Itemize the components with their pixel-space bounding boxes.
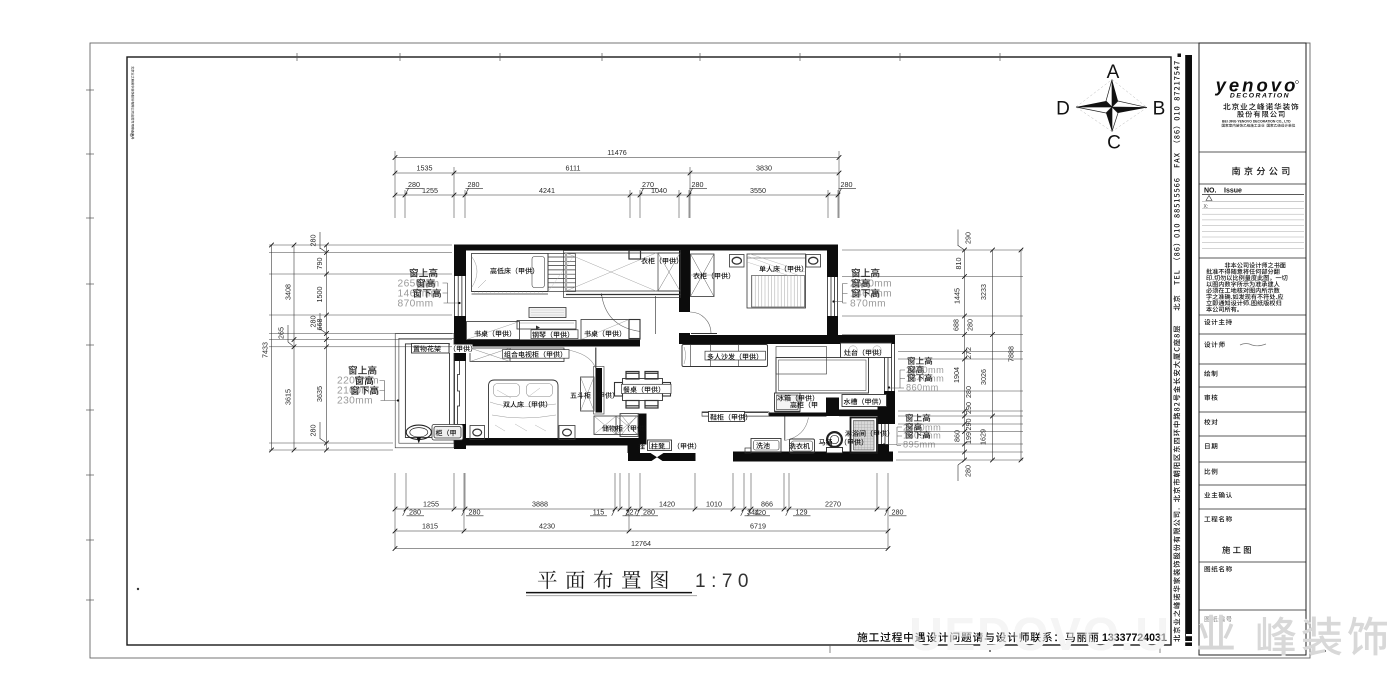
svg-text:1629: 1629 (979, 429, 988, 445)
svg-text:870mm: 870mm (398, 299, 434, 310)
svg-text:810: 810 (954, 258, 963, 270)
svg-text:230mm: 230mm (337, 396, 373, 407)
svg-text:290: 290 (964, 419, 973, 431)
svg-text:1445: 1445 (953, 288, 962, 304)
svg-text:120: 120 (754, 508, 766, 517)
svg-text:895mm: 895mm (903, 440, 936, 450)
svg-text:870mm: 870mm (850, 299, 886, 310)
svg-text:Issue: Issue (1224, 188, 1242, 195)
svg-text:DECORATION: DECORATION (1230, 93, 1290, 100)
svg-text:280: 280 (964, 386, 973, 398)
svg-text:1904: 1904 (952, 367, 961, 383)
svg-text:D: D (1056, 99, 1070, 120)
svg-text:3635: 3635 (315, 386, 324, 402)
svg-text:1420: 1420 (659, 500, 675, 509)
svg-text:290: 290 (964, 402, 973, 414)
svg-text:4241: 4241 (539, 186, 555, 195)
svg-text:280: 280 (468, 180, 480, 189)
svg-text:C: C (1107, 133, 1121, 154)
svg-text:270: 270 (642, 180, 654, 189)
svg-text:6111: 6111 (566, 164, 581, 173)
svg-text:280: 280 (309, 425, 318, 437)
svg-text:227: 227 (626, 508, 638, 517)
svg-text:BEI JING YENOVO DECORATION CO.: BEI JING YENOVO DECORATION CO., LTD (1222, 120, 1291, 124)
svg-text:1255: 1255 (422, 186, 438, 195)
svg-text:790: 790 (315, 258, 324, 270)
svg-text:6719: 6719 (750, 522, 766, 531)
svg-text:2270: 2270 (825, 500, 841, 509)
svg-text:7888: 7888 (1007, 346, 1016, 362)
svg-text:199: 199 (964, 432, 973, 444)
svg-text:4230: 4230 (539, 522, 555, 531)
svg-text:NO.: NO. (1204, 188, 1217, 195)
svg-text:280: 280 (841, 180, 853, 189)
svg-text:3615: 3615 (284, 389, 293, 405)
svg-text:X:: X: (1204, 204, 1209, 210)
svg-text:280: 280 (966, 319, 975, 331)
svg-text:3550: 3550 (750, 186, 766, 195)
svg-text:3888: 3888 (532, 500, 548, 509)
svg-text:290: 290 (964, 232, 973, 244)
svg-text:12764: 12764 (631, 539, 651, 548)
svg-text:1255: 1255 (423, 500, 439, 509)
svg-text:280: 280 (469, 508, 481, 517)
svg-text:1500: 1500 (315, 287, 324, 303)
svg-text:280: 280 (964, 465, 973, 477)
svg-text:1010: 1010 (706, 500, 722, 509)
svg-text:3233: 3233 (979, 284, 988, 300)
svg-text:B: B (1153, 99, 1166, 120)
svg-text:272: 272 (964, 347, 973, 359)
svg-text:860: 860 (953, 430, 962, 442)
svg-text:1:70: 1:70 (695, 571, 754, 592)
svg-text:280: 280 (408, 180, 420, 189)
svg-text:1535: 1535 (417, 164, 433, 173)
svg-text:UEDOVO.U: UEDOVO.U (909, 608, 1170, 660)
svg-text:3408: 3408 (284, 284, 293, 300)
svg-text:7433: 7433 (261, 342, 270, 358)
svg-text:280: 280 (692, 180, 704, 189)
svg-text:280: 280 (409, 508, 421, 517)
svg-text:280: 280 (309, 235, 318, 247)
svg-text:129: 129 (796, 508, 808, 517)
svg-text:688: 688 (952, 319, 961, 331)
svg-text:3830: 3830 (756, 164, 772, 173)
svg-text:280: 280 (309, 316, 318, 328)
svg-text:280: 280 (892, 508, 904, 517)
svg-text:265: 265 (277, 327, 286, 339)
svg-text:11476: 11476 (607, 148, 626, 157)
svg-text:280: 280 (643, 508, 655, 517)
svg-text:1815: 1815 (422, 522, 438, 531)
svg-text:3026: 3026 (979, 369, 988, 385)
svg-text:115: 115 (593, 508, 604, 517)
svg-text:A: A (1107, 62, 1120, 83)
